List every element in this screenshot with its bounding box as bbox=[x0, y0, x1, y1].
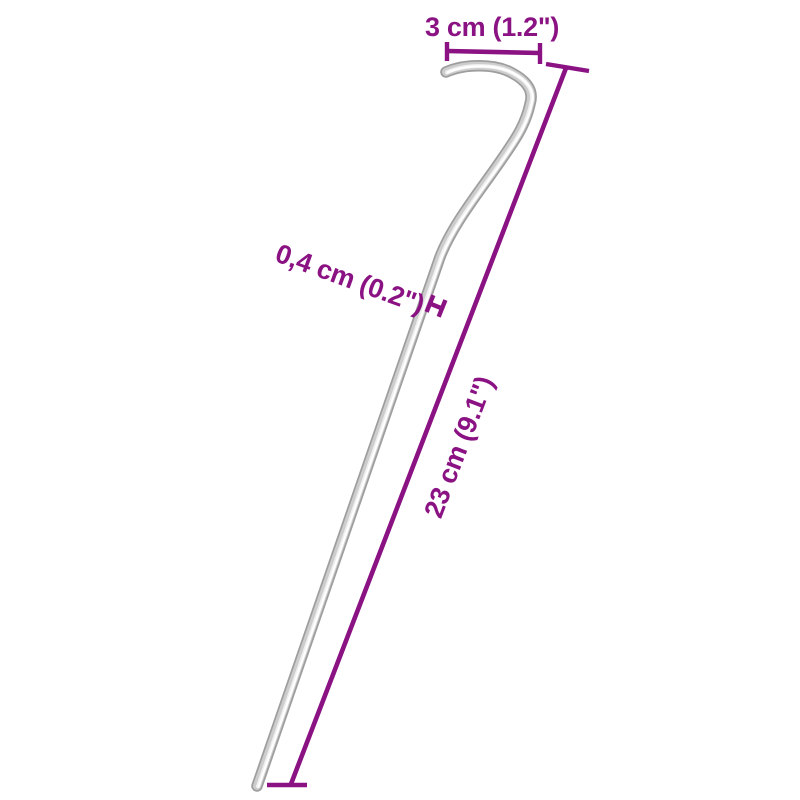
diameter-label: 0,4 cm (0.2") bbox=[272, 238, 429, 320]
length-dimension-line bbox=[291, 68, 566, 784]
tent-peg bbox=[257, 66, 533, 787]
diameter-marker-crossbar bbox=[430, 304, 442, 309]
hook-width-dimension-line bbox=[447, 51, 540, 53]
hook-width-label: 3 cm (1.2") bbox=[425, 12, 559, 42]
dimension-length: 23 cm (9.1") bbox=[267, 64, 589, 785]
dimension-diameter: 0,4 cm (0.2") bbox=[272, 238, 446, 320]
length-label: 23 cm (9.1") bbox=[418, 372, 499, 522]
peg-body-mid bbox=[257, 66, 531, 786]
diagram-canvas: 3 cm (1.2") 23 cm (9.1") 0,4 cm (0.2") bbox=[0, 0, 800, 800]
product-diagram: 3 cm (1.2") 23 cm (9.1") 0,4 cm (0.2") bbox=[0, 0, 800, 800]
dimension-hook-width: 3 cm (1.2") bbox=[425, 12, 559, 64]
